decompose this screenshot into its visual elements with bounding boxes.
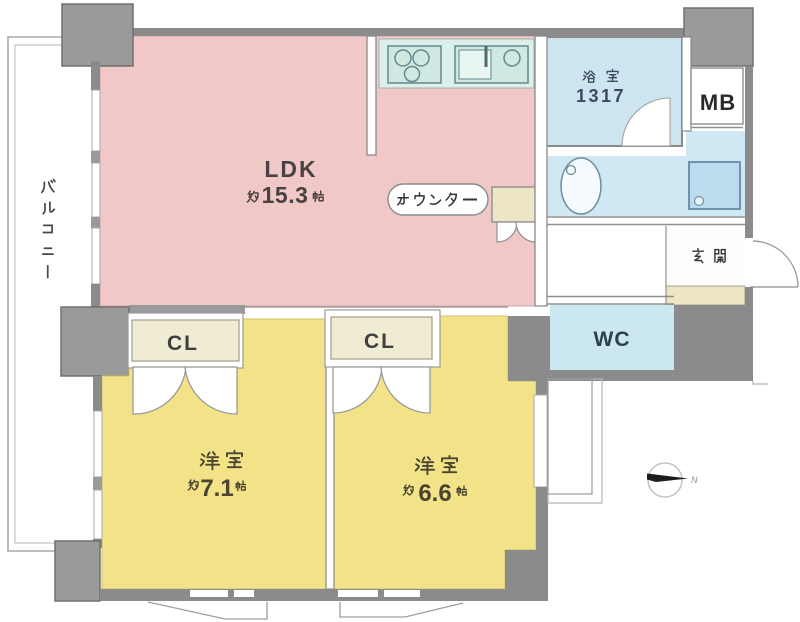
- svg-text:6.6: 6.6: [418, 480, 451, 507]
- svg-text:LDK: LDK: [264, 156, 317, 182]
- svg-text:15.3: 15.3: [262, 182, 309, 208]
- svg-text:1317: 1317: [576, 86, 626, 106]
- svg-text:N: N: [691, 475, 698, 485]
- svg-text:WC: WC: [594, 328, 631, 351]
- svg-text:7.1: 7.1: [200, 475, 233, 502]
- svg-text:CL: CL: [167, 332, 199, 355]
- svg-text:MB: MB: [700, 90, 736, 115]
- svg-text:CL: CL: [364, 330, 396, 353]
